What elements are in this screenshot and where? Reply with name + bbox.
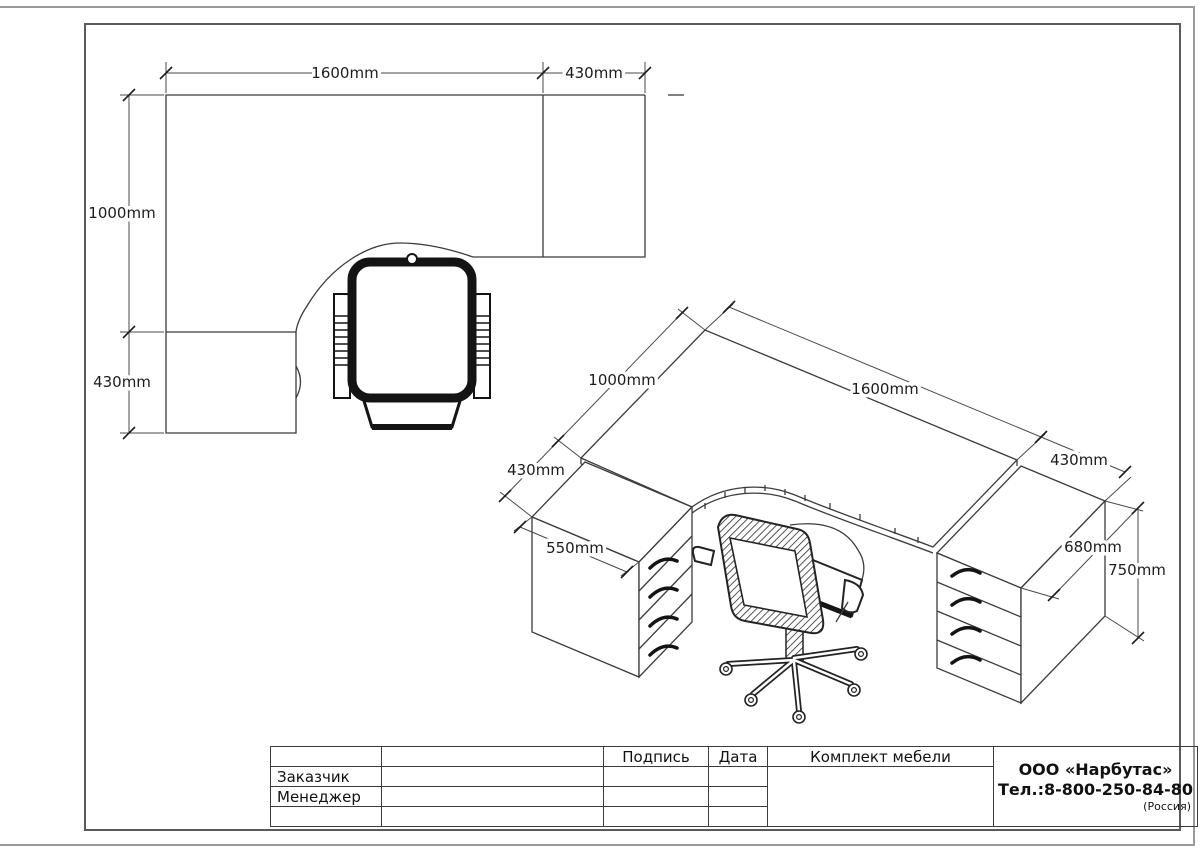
iso-dim-left-front: 430mm [507, 461, 565, 479]
iso-dim-width: 1600mm [851, 380, 918, 398]
cell-empty [271, 747, 382, 767]
iso-dim-right-pedestal-depth: 680mm [1064, 538, 1122, 556]
cell-empty [709, 767, 768, 787]
title-block-table: Подпись Дата Комплект мебели ООО «Нарбут… [270, 746, 1198, 827]
row-label-manager: Менеджер [271, 787, 382, 807]
iso-dim-depth: 1000mm [588, 371, 655, 389]
iso-view: 1000mm 1600mm 430mm 430mm 550mm 680mm 75… [499, 301, 1166, 723]
header-signature: Подпись [604, 747, 709, 767]
furniture-set-cell [768, 767, 994, 827]
plan-dim-left-pedestal: 430mm [93, 373, 151, 391]
iso-dim-left-pedestal-width: 550mm [546, 539, 604, 557]
cell-empty [382, 787, 604, 807]
header-furniture-set: Комплект мебели [768, 747, 994, 767]
plan-dim-width: 1600mm [311, 64, 378, 82]
cell-empty [604, 767, 709, 787]
company-info-cell: ООО «Нарбутас» Тел.:8-800-250-84-80 (Рос… [994, 747, 1198, 827]
iso-dim-right-pedestal: 430mm [1050, 451, 1108, 469]
cell-empty [382, 767, 604, 787]
cell-empty [709, 787, 768, 807]
plan-dim-depth: 1000mm [88, 204, 155, 222]
header-date: Дата [709, 747, 768, 767]
cell-empty [382, 747, 604, 767]
plan-dim-right-pedestal: 430mm [565, 64, 623, 82]
drawing-sheet: 1600mm 430mm 1000mm 430mm [0, 0, 1200, 850]
title-block: Подпись Дата Комплект мебели ООО «Нарбут… [270, 746, 1198, 827]
cell-empty [604, 787, 709, 807]
cell-empty [382, 807, 604, 827]
company-country: (Россия) [998, 800, 1193, 813]
row-label-customer: Заказчик [271, 767, 382, 787]
iso-dim-height: 750mm [1108, 561, 1166, 579]
cell-empty [709, 807, 768, 827]
company-phone: Тел.:8-800-250-84-80 [998, 780, 1193, 800]
cell-empty [604, 807, 709, 827]
technical-drawing: 1600mm 430mm 1000mm 430mm [0, 0, 1200, 850]
cell-empty [271, 807, 382, 827]
company-name: ООО «Нарбутас» [998, 760, 1193, 780]
chair-iso-view [693, 515, 867, 723]
chair-top-view [334, 254, 490, 427]
